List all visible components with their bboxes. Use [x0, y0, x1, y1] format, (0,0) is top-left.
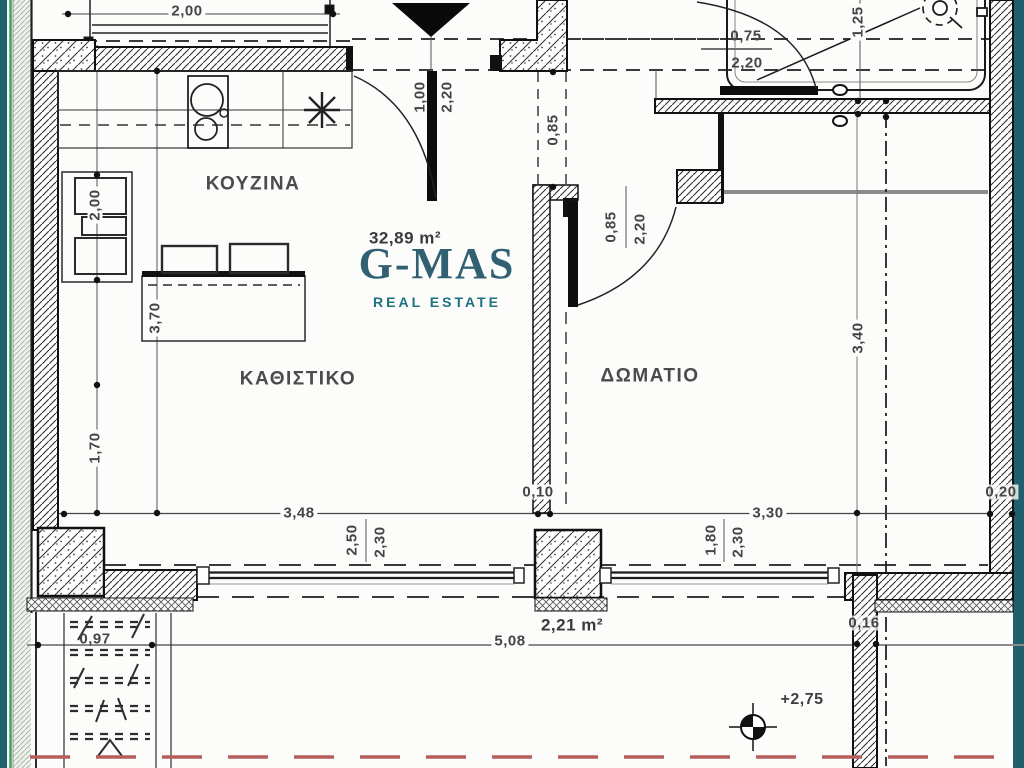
dim-living-window-width: 2,50 [345, 524, 360, 555]
room-label-living: ΚΑΘΙΣΤΙΚΟ [240, 370, 356, 389]
watermark-logo: G-MAS REAL ESTATE [359, 242, 516, 310]
top-window [84, 0, 334, 46]
dim-bedroom-window-height: 2,30 [731, 526, 746, 557]
dim-bedroom-window-width: 1,80 [704, 524, 719, 555]
watermark-subtitle: REAL ESTATE [359, 294, 516, 310]
shower-head-icon [923, 0, 962, 28]
dim-kitchen-depth: 3,70 [148, 299, 163, 336]
dim-balcony-length: 5,08 [491, 634, 528, 649]
dim-living-window-height: 2,30 [373, 526, 388, 557]
dim-pier-width: 0,16 [846, 616, 881, 631]
dim-shower-width: 1,25 [851, 3, 866, 40]
dim-entry-door-height: 2,20 [440, 81, 455, 112]
stool [230, 244, 288, 273]
dim-bedroom-door-width: 0,85 [604, 211, 619, 242]
entrance-arrow-icon [392, 3, 470, 37]
dim-top-window: 2,00 [168, 4, 205, 19]
level-mark-label: +2,75 [781, 692, 824, 708]
cooktop-icon [304, 92, 340, 128]
watermark-title: G-MAS [359, 242, 516, 286]
dim-bedroom-width: 3,30 [749, 506, 786, 521]
dim-stair-width: 0,97 [79, 632, 110, 647]
dim-bath-door-height: 2,20 [731, 56, 762, 71]
south-windows [197, 567, 839, 584]
dim-mid-wall-thickness: 0,10 [519, 485, 556, 500]
dim-living-left-wall: 1,70 [88, 429, 103, 466]
room-label-kitchen: ΚΟΥΖΙΝΑ [206, 175, 301, 194]
sink-icon [188, 76, 228, 148]
level-marker-icon [729, 703, 777, 751]
dim-bedroom-depth: 3,40 [851, 319, 866, 356]
dim-living-width: 3,48 [280, 506, 317, 521]
stool [162, 246, 217, 273]
dim-right-wall-thickness: 0,20 [983, 485, 1018, 500]
floor-plan-image: 2,00 ΚΟΥΖΙΝΑ 2,00 3,70 1,70 32,89 m² G-M… [0, 0, 1024, 768]
dim-bedroom-door-height: 2,20 [633, 213, 648, 244]
dim-entry-door-width: 1,00 [413, 81, 428, 112]
room-label-bedroom: ΔΩΜΑΤΙΟ [600, 367, 699, 386]
dim-hall-opening: 0,85 [546, 114, 561, 145]
bedroom-door [568, 202, 676, 307]
bar-counter [142, 244, 305, 341]
floor-plan-drawing [0, 0, 1024, 768]
dim-kitchen-cabinet: 2,00 [88, 186, 103, 223]
dim-bath-door-width: 0,75 [730, 29, 761, 44]
balcony-pier-area: 2,21 m² [541, 617, 603, 634]
